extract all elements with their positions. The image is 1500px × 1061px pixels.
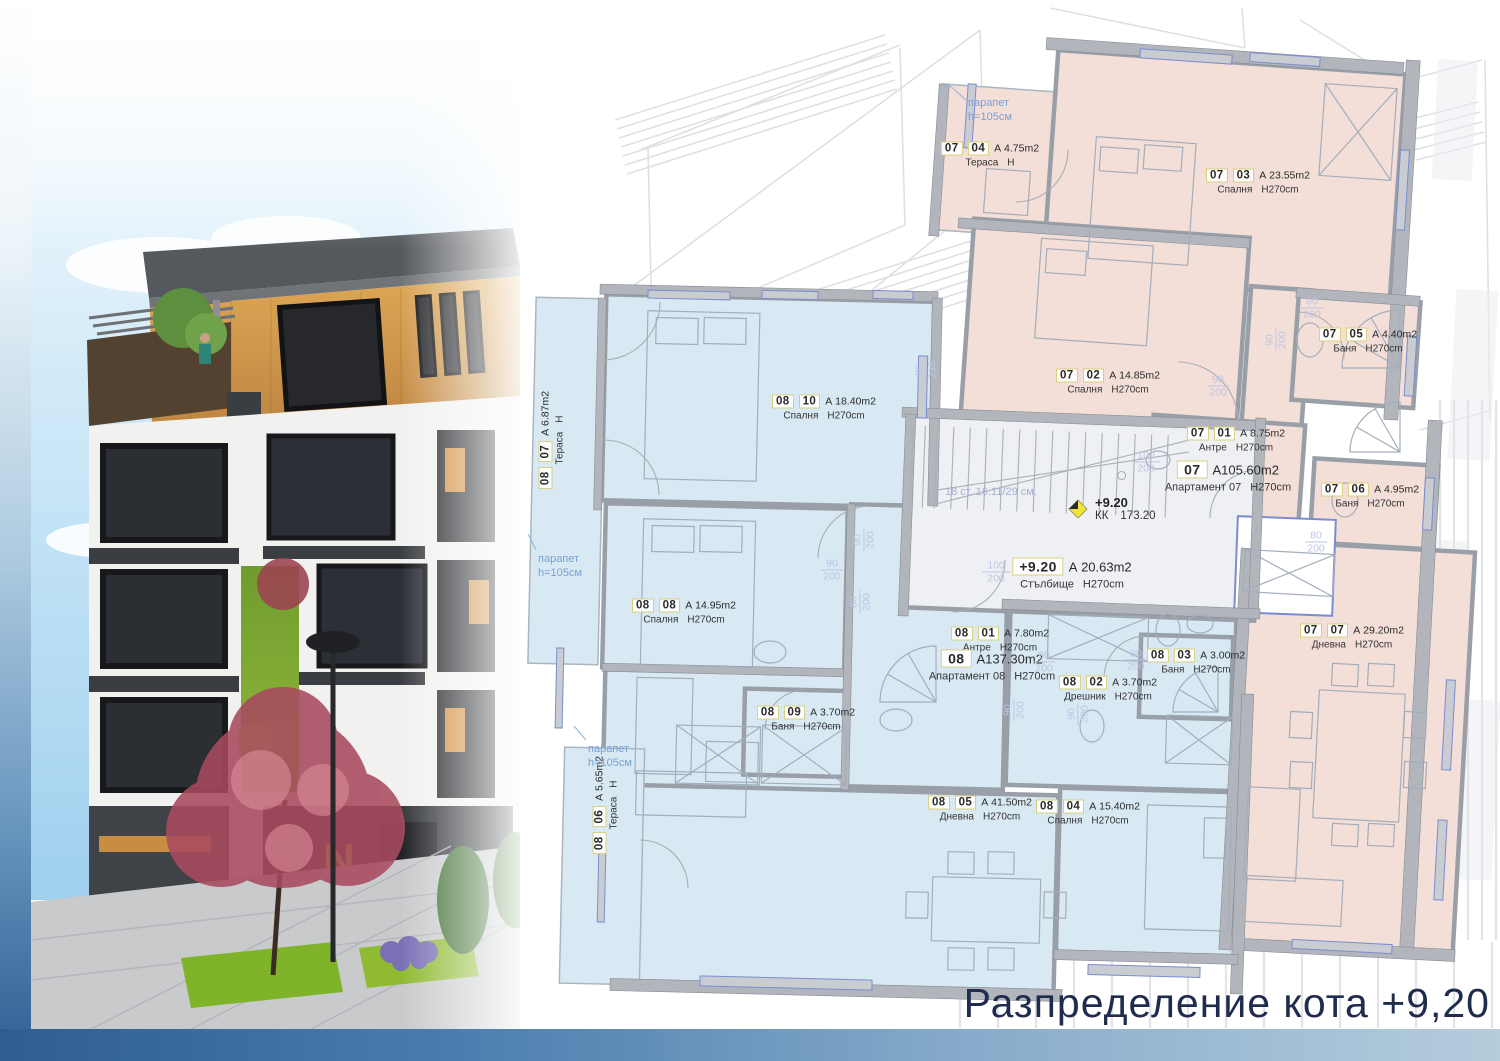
room-label-08-04: 0804А 15.40m2 СпалняH270cm (1036, 800, 1140, 827)
room-label-08-06: 0806А 5.65m2 ТерасаН (593, 756, 620, 854)
dim-label: 80200 (1125, 647, 1147, 672)
room-label-08-03: 0803А 3.00m2 БаняH270cm (1147, 649, 1245, 676)
dim-label: 90200 (821, 557, 843, 582)
room-label-08-10: 0810А 18.40m2 СпалняH270cm (772, 395, 876, 422)
elevation-marker-icon (1068, 499, 1088, 519)
sheet-title: Разпределение кота +9,20 (964, 980, 1490, 1027)
bottom-gradient-bar (0, 1029, 1500, 1061)
parapet-note-left: парапетh=105см (538, 552, 582, 581)
dim-label: 90200 (1207, 373, 1229, 398)
floor-plan (0, 0, 1500, 1061)
room-label-08-02: 0802А 3.70m2 ДрешникH270cm (1059, 676, 1157, 703)
room-label-07-03: 0703А 23.55m2 СпалняH270cm (1206, 169, 1310, 196)
room-label-08-07: 0807А 6.87m2 ТерасаН (539, 391, 566, 489)
dim-label: 90200 (1001, 699, 1026, 721)
dim-label: 90200 (1065, 703, 1090, 725)
dim-label: 70235 (913, 359, 938, 381)
room-label-07-07: 0707А 29.20m2 ДневнаH270cm (1300, 624, 1404, 651)
room-label-07-02: 0702А 14.85m2 СпалняH270cm (1056, 369, 1160, 396)
dim-label: 90200 (851, 529, 876, 551)
stairs-note: 18 ст. 16.11/29 см. (945, 486, 1037, 498)
dim-label: 100200 (982, 559, 1010, 584)
stairwell-label: +9.20А 20.63m2 СтълбищеH270cm (1012, 558, 1131, 591)
room-label-07-01: 0701А 8.75m2 АнтреH270cm (1187, 427, 1285, 454)
elevation-level: +9.20 (1095, 495, 1156, 510)
room-label-08-09: 0809А 3.70m2 БаняH270cm (757, 706, 855, 733)
room-label-07-04: 0704А 4.75m2 ТерасаН (941, 142, 1039, 169)
dim-label: 100200 (1132, 449, 1160, 474)
room-label-08-05: 0805А 41.50m2 ДневнаH270cm (928, 796, 1032, 823)
room-label-08-08: 0808А 14.95m2 СпалняH270cm (632, 599, 736, 626)
dim-label: 80200 (847, 591, 872, 613)
kk-value: 173.20 (1120, 510, 1155, 522)
dim-label: 80200 (1305, 529, 1327, 554)
kk-label: КК (1095, 510, 1108, 522)
dim-label: 90200 (1033, 649, 1055, 674)
parapet-note-bottom: парапетh=105см (588, 742, 632, 771)
parapet-note-top: парапетh=105см (968, 96, 1012, 125)
dim-label: 80200 (1301, 295, 1323, 320)
apartment-label-07: 07А105.60m2 Апартамент 07H270cm (1165, 461, 1291, 494)
dim-label: 90200 (1263, 329, 1288, 351)
elevation-marker: +9.20 КК173.20 (1068, 495, 1156, 522)
sheet: N (0, 0, 1500, 1061)
room-label-07-06: 0706А 4.95m2 БаняH270cm (1321, 483, 1419, 510)
room-label-07-05: 0705А 4.40m2 БаняH270cm (1319, 328, 1417, 355)
